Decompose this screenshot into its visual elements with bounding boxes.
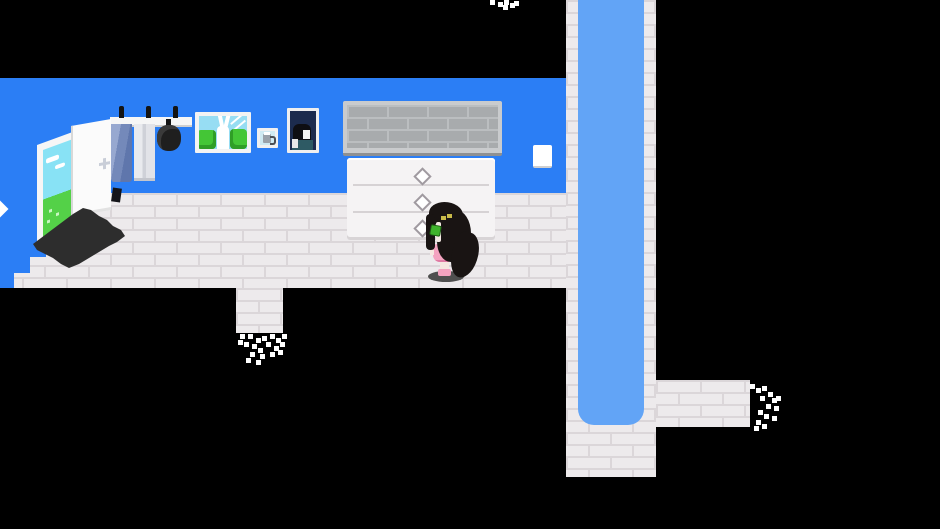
hanging-blue-towel — [111, 124, 132, 182]
character-feet — [438, 269, 451, 276]
character-hand — [430, 250, 434, 255]
jug-lid — [264, 132, 270, 135]
walkway-right-dissolve — [750, 384, 755, 389]
game-viewport[interactable] — [0, 0, 940, 529]
cloud — [55, 162, 65, 170]
grass-fleck — [56, 212, 59, 216]
portrait-face — [303, 130, 310, 139]
picture-rabbit-scene — [199, 116, 247, 149]
bush — [199, 130, 216, 149]
character-long-haired-girl — [424, 200, 484, 285]
hanging-pot — [157, 125, 181, 151]
walkway-down — [236, 288, 283, 333]
rabbit-body — [217, 126, 229, 149]
rack-hook — [173, 106, 178, 118]
top-dissolve — [490, 0, 495, 5]
door-knob-icon — [103, 158, 106, 170]
door-stop — [111, 187, 122, 202]
cloud — [46, 154, 59, 164]
picture-jug-scene — [260, 131, 275, 145]
drawer-handle-diamond-icon — [413, 167, 431, 185]
picture-jug — [257, 128, 278, 148]
character-eye — [441, 216, 446, 220]
picture-portrait — [287, 108, 319, 153]
wall-vent — [343, 101, 502, 156]
walkway-down-dissolve — [240, 334, 245, 339]
water-channel — [578, 0, 644, 425]
bush — [230, 129, 247, 149]
rack-hook — [119, 106, 124, 118]
portrait-arm — [292, 139, 298, 148]
light-switch — [533, 145, 552, 168]
rack-hook — [146, 106, 151, 118]
picture-rabbit — [195, 112, 251, 153]
wall-vent-grate — [347, 105, 498, 148]
character-eye — [447, 214, 452, 218]
jug-handle — [270, 136, 276, 145]
grass-fleck — [47, 219, 50, 223]
character-leaf-accent — [429, 224, 442, 237]
door-panel — [71, 119, 111, 217]
picture-portrait-scene — [290, 111, 316, 150]
hanging-white-towel — [134, 124, 155, 181]
grass-fleck — [49, 209, 52, 213]
walkway-right — [656, 380, 750, 427]
